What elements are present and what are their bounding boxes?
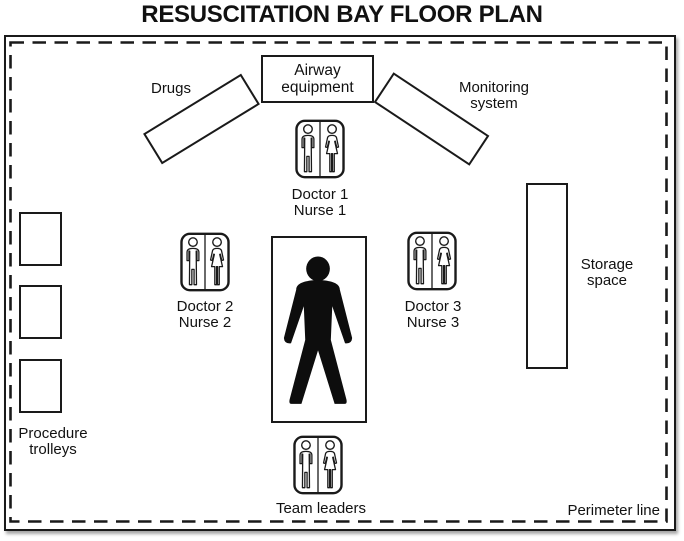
doctor1-label: Doctor 1 [270,187,370,203]
staff-position1-label: Doctor 1 Nurse 1 [270,187,370,218]
doctor2-nurse2-icon [180,231,230,293]
procedure-trolleys-label: Procedure trolleys [8,426,98,457]
storage-label-line2: space [569,273,645,289]
nurse1-label: Nurse 1 [270,203,370,219]
procedure-trolley-2 [19,285,62,339]
airway-label-line1: Airway [294,62,341,79]
perimeter-line-label: Perimeter line [540,503,660,519]
storage-space-label: Storage space [569,257,645,288]
doctor2-label: Doctor 2 [155,299,255,315]
trolleys-label-line1: Procedure [8,426,98,442]
team-leaders-label: Team leaders [246,501,396,517]
patient-silhouette-icon [273,238,364,420]
staff-position2-label: Doctor 2 Nurse 2 [155,299,255,330]
storage-label-line1: Storage [569,257,645,273]
staff-position3-label: Doctor 3 Nurse 3 [383,299,483,330]
patient-trolley [271,236,367,423]
procedure-trolley-1 [19,212,62,266]
trolleys-label-line2: trolleys [8,442,98,458]
storage-space-rect [526,183,568,369]
nurse3-label: Nurse 3 [383,315,483,331]
monitoring-label-line2: system [444,96,544,112]
procedure-trolley-3 [19,359,62,413]
airway-equipment-box: Airway equipment [261,55,374,103]
drugs-label: Drugs [138,81,204,97]
nurse2-label: Nurse 2 [155,315,255,331]
airway-label-line2: equipment [281,79,353,96]
doctor3-nurse3-icon [407,230,457,292]
diagram-title: RESUSCITATION BAY FLOOR PLAN [0,1,684,29]
doctor1-nurse1-icon [295,118,345,180]
team-leaders-icon [293,434,343,496]
doctor3-label: Doctor 3 [383,299,483,315]
monitoring-system-label: Monitoring system [444,80,544,111]
resuscitation-bay-floor-plan: RESUSCITATION BAY FLOOR PLAN Airway equi… [0,0,684,541]
monitoring-label-line1: Monitoring [444,80,544,96]
